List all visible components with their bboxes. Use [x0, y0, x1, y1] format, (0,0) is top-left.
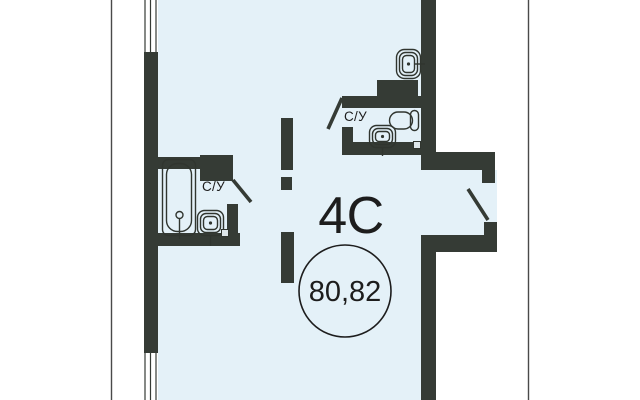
upper-bath-door-jamb — [342, 127, 353, 142]
left-wall — [144, 51, 158, 354]
niche-door-jamb-upper — [482, 170, 495, 183]
right-wall-upper — [421, 0, 436, 153]
window-bottom-left — [144, 353, 158, 400]
vent-icon-left — [222, 230, 229, 237]
window-top-left — [144, 0, 158, 52]
floorplan-card[interactable]: С/У С/У 4С — [0, 0, 640, 400]
upper-bath-top-wall — [342, 96, 422, 108]
partition-stub-middle — [281, 177, 292, 190]
left-bath-corner-block — [200, 155, 233, 181]
area-value-label: 80,82 — [309, 276, 382, 308]
floorplan-drawing: С/У С/У 4С — [0, 0, 640, 400]
left-bath-label: С/У — [202, 179, 225, 194]
partition-stub-lower — [281, 232, 294, 283]
exterior-wall-left — [144, 0, 158, 400]
niche-bottom-wall — [421, 235, 497, 252]
niche-door-jamb-lower — [484, 222, 497, 236]
vent-icon-upper — [414, 142, 421, 149]
partition-stub-upper — [281, 118, 293, 170]
niche-top-wall — [421, 152, 495, 170]
upper-bath-label: С/У — [344, 109, 367, 124]
upper-bath-shaft-block — [377, 80, 418, 98]
right-wall-lower — [421, 252, 436, 400]
apartment-type-label: 4С — [318, 187, 383, 245]
